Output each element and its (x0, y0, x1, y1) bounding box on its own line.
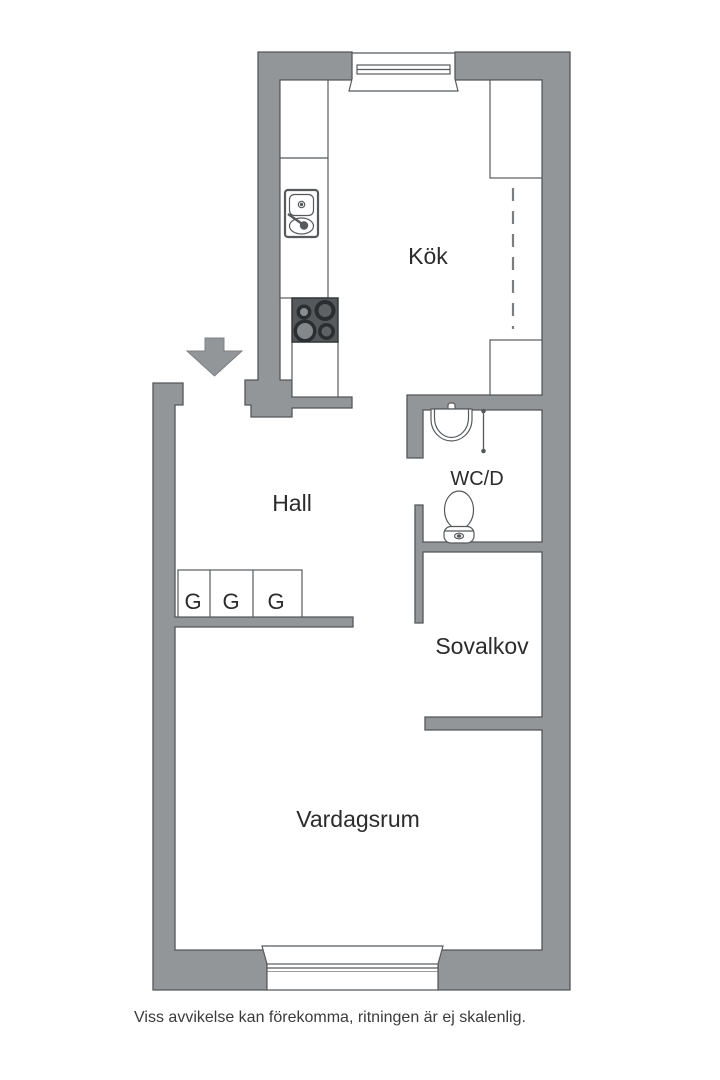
kitchen-fixtures (280, 80, 542, 397)
closet-label-3: G (267, 589, 284, 614)
wall-left-complex (153, 383, 353, 990)
room-label-alcove: Sovalkov (435, 633, 529, 659)
kitchen-counter-lower (292, 342, 338, 397)
stove-icon (292, 298, 338, 343)
room-label-wc: WC/D (450, 468, 503, 490)
floor-plan: G G G Kök Hall WC/D Sovalkov Vardagsrum … (0, 0, 720, 1080)
shower-line-icon (481, 409, 486, 454)
washbasin-icon (431, 403, 472, 441)
room-label-living-room: Vardagsrum (296, 806, 420, 832)
window-bottom-icon (262, 946, 443, 990)
wall-right-complex (407, 52, 570, 990)
toilet-icon (444, 491, 474, 543)
closet-label-2: G (222, 589, 239, 614)
walls (153, 52, 570, 990)
kitchen-sink-icon (285, 190, 318, 237)
entrance-arrow-icon (187, 338, 242, 376)
closet-label-1: G (184, 589, 201, 614)
disclaimer-caption: Viss avvikelse kan förekomma, ritningen … (134, 1009, 526, 1026)
kitchen-cabinet-upper (490, 80, 542, 178)
window-top-icon (349, 53, 458, 91)
room-label-kitchen: Kök (408, 243, 448, 269)
kitchen-cabinet-lower (490, 340, 542, 395)
floor-plan-page: G G G Kök Hall WC/D Sovalkov Vardagsrum … (0, 0, 720, 1080)
room-label-hall: Hall (272, 490, 312, 516)
